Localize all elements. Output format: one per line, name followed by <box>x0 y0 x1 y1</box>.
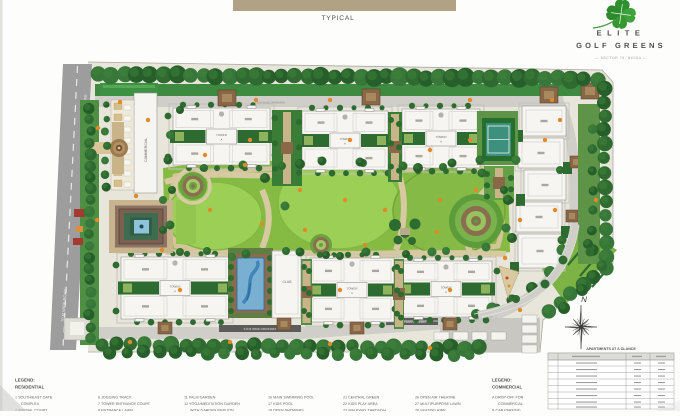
svg-text:A: A <box>221 139 223 142</box>
svg-text:12 YOGA/MEDITATION GARDEN: 12 YOGA/MEDITATION GARDEN <box>184 402 240 406</box>
svg-text:22 KIDS PLAY AREA: 22 KIDS PLAY AREA <box>343 402 378 406</box>
svg-text:17 KIDS POOL: 17 KIDS POOL <box>268 402 293 406</box>
svg-text:TYPICAL: TYPICAL <box>321 15 354 22</box>
svg-text:A: A <box>351 292 353 295</box>
svg-text:26 OPEN AIR THEATRE: 26 OPEN AIR THEATRE <box>415 396 456 400</box>
svg-text:LEGEND:: LEGEND: <box>492 377 512 382</box>
svg-text:27 MULTIPURPOSE LAWN: 27 MULTIPURPOSE LAWN <box>415 402 461 406</box>
svg-text:A: A <box>344 143 346 146</box>
svg-text:TOWER: TOWER <box>435 135 447 139</box>
svg-text:7 TOWER ENTRANCE COURT: 7 TOWER ENTRANCE COURT <box>98 402 151 406</box>
svg-text:GOLF GREENS: GOLF GREENS <box>576 41 666 50</box>
svg-text:1 SOUTH/EAST GATE: 1 SOUTH/EAST GATE <box>15 396 53 400</box>
svg-text:16 MAIN SWIMMING POOL: 16 MAIN SWIMMING POOL <box>268 396 314 400</box>
svg-text:TOWER: TOWER <box>216 133 228 137</box>
svg-text:6 JOGGING TRACK: 6 JOGGING TRACK <box>98 396 132 400</box>
svg-text:A: A <box>440 141 442 144</box>
svg-text:— SECTOR 79, NOIDA —: — SECTOR 79, NOIDA — <box>595 56 647 60</box>
svg-text:A: A <box>445 291 447 294</box>
svg-text:COMMERCIAL: COMMERCIAL <box>144 138 148 162</box>
svg-text:CLUB: CLUB <box>282 280 292 284</box>
svg-text:APARTMENTS AT A GLANCE: APARTMENTS AT A GLANCE <box>586 347 636 351</box>
svg-text:TOWER: TOWER <box>346 287 358 291</box>
svg-text:N: N <box>581 295 587 304</box>
svg-text:9.0 M WIDE DRIVEWAY: 9.0 M WIDE DRIVEWAY <box>244 327 277 331</box>
svg-text:A: A <box>174 290 176 293</box>
svg-text:21 CENTRAL GREEN: 21 CENTRAL GREEN <box>343 396 380 400</box>
svg-text:COMPLEX: COMPLEX <box>21 402 40 406</box>
svg-text:ELITE: ELITE <box>597 29 646 38</box>
svg-text:A DROP-OFF FOR: A DROP-OFF FOR <box>492 396 524 400</box>
svg-text:11 PALM GARDEN: 11 PALM GARDEN <box>184 396 216 400</box>
svg-text:LEGEND:: LEGEND: <box>15 377 35 382</box>
svg-text:COMMERCIAL: COMMERCIAL <box>492 384 523 389</box>
svg-text:COMMERCIAL: COMMERCIAL <box>498 402 523 406</box>
svg-text:RESIDENTIAL: RESIDENTIAL <box>15 384 45 389</box>
